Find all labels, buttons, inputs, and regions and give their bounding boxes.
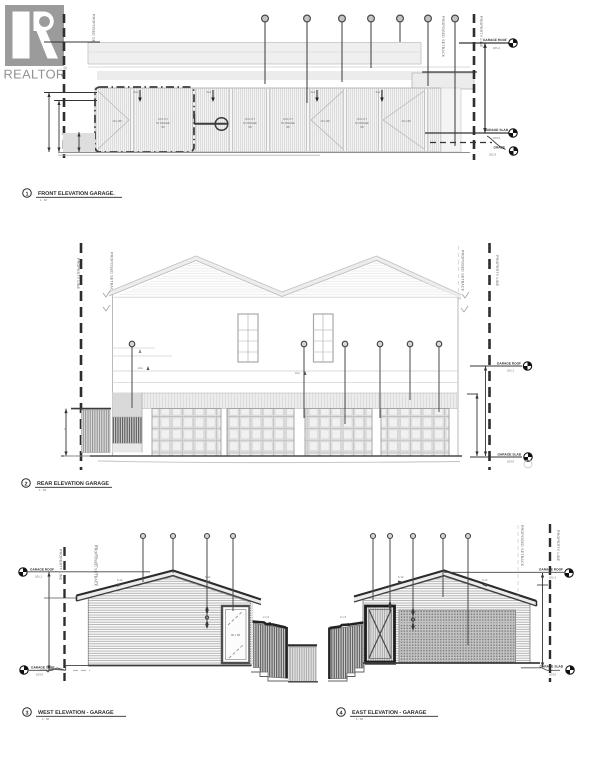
svg-text:80: 80: [360, 125, 364, 129]
svg-text:2x4: 2x4: [375, 90, 380, 94]
svg-text:2x4: 2x4: [133, 90, 138, 94]
svg-text:PROPERTY LINE: PROPERTY LINE: [76, 258, 80, 290]
svg-text:103.6: 103.6: [36, 673, 43, 677]
svg-text:80: 80: [248, 125, 252, 129]
svg-text:PROPOSED SETBACK: PROPOSED SETBACK: [94, 545, 98, 587]
svg-text:105.2: 105.2: [493, 46, 500, 50]
svg-text:PROPERTY LINE: PROPERTY LINE: [556, 530, 560, 562]
svg-text:GARAGE ROOF: GARAGE ROOF: [483, 38, 507, 42]
svg-text:REALTOR: REALTOR: [4, 67, 66, 82]
svg-text:2x4: 2x4: [138, 366, 143, 370]
svg-text:GARAGE SLAB: GARAGE SLAB: [497, 453, 521, 457]
svg-text:5:12: 5:12: [398, 575, 404, 579]
svg-text:16 x 80: 16 x 80: [401, 119, 411, 123]
svg-text:FRONT ELEVATION GARAGE.: FRONT ELEVATION GARAGE.: [38, 191, 115, 197]
svg-text:2x4: 2x4: [310, 90, 315, 94]
svg-text:102.9: 102.9: [489, 153, 496, 157]
svg-text:105.2: 105.2: [507, 369, 514, 373]
svg-text:PROPOSED SETBACK: PROPOSED SETBACK: [520, 525, 524, 567]
svg-text:PROPOSED SETBACK: PROPOSED SETBACK: [110, 252, 114, 294]
svg-text:2 x 6: 2 x 6: [340, 615, 347, 619]
svg-text:GARAGE ROOF: GARAGE ROOF: [497, 362, 521, 366]
svg-text:30 x 80: 30 x 80: [231, 633, 241, 637]
svg-text:WEST ELEVATION - GARAGE: WEST ELEVATION - GARAGE: [38, 710, 114, 716]
svg-text:105.2: 105.2: [549, 576, 556, 580]
svg-text:2: 2: [24, 481, 27, 487]
svg-text:1 : 50: 1 : 50: [356, 717, 363, 721]
svg-text:103.6: 103.6: [507, 460, 514, 464]
svg-text:1 : 50: 1 : 50: [40, 198, 47, 202]
svg-text:2 x 6: 2 x 6: [263, 615, 270, 619]
svg-text:REAR ELEVATION GARAGE: REAR ELEVATION GARAGE: [37, 481, 109, 487]
svg-text:5:12: 5:12: [205, 575, 211, 579]
svg-text:5:12: 5:12: [117, 578, 123, 582]
svg-text:PROPERTY LINE: PROPERTY LINE: [59, 549, 63, 581]
svg-text:1 : 50: 1 : 50: [42, 717, 49, 721]
svg-text:3: 3: [25, 710, 28, 716]
svg-text:GARAGE SLAB: GARAGE SLAB: [539, 665, 563, 669]
svg-text:80: 80: [286, 125, 290, 129]
svg-text:PROPOSED SETBACK: PROPOSED SETBACK: [461, 250, 465, 292]
svg-text:16 x 80: 16 x 80: [112, 119, 122, 123]
svg-text:GARAGE SLAB: GARAGE SLAB: [484, 128, 508, 132]
svg-text:PROPOSED SETBACK: PROPOSED SETBACK: [441, 16, 445, 58]
svg-text:GARAGE ROOF: GARAGE ROOF: [30, 568, 54, 572]
svg-text:5:12: 5:12: [482, 578, 488, 582]
svg-text:EAST ELEVATION - GARAGE: EAST ELEVATION - GARAGE: [352, 710, 427, 716]
svg-text:2x4: 2x4: [206, 90, 211, 94]
svg-text:16 x 80: 16 x 80: [320, 119, 330, 123]
svg-text:GARAGE ROOF: GARAGE ROOF: [539, 568, 563, 572]
svg-text:105.2: 105.2: [35, 575, 42, 579]
svg-text:103.6: 103.6: [493, 136, 500, 140]
svg-text:103.6: 103.6: [549, 673, 556, 677]
svg-text:1 : 50: 1 : 50: [39, 488, 46, 492]
svg-text:80: 80: [161, 125, 165, 129]
svg-text:PROPERTY LINE: PROPERTY LINE: [495, 255, 499, 287]
svg-text:1: 1: [25, 191, 28, 197]
svg-text:2x4: 2x4: [295, 371, 300, 375]
